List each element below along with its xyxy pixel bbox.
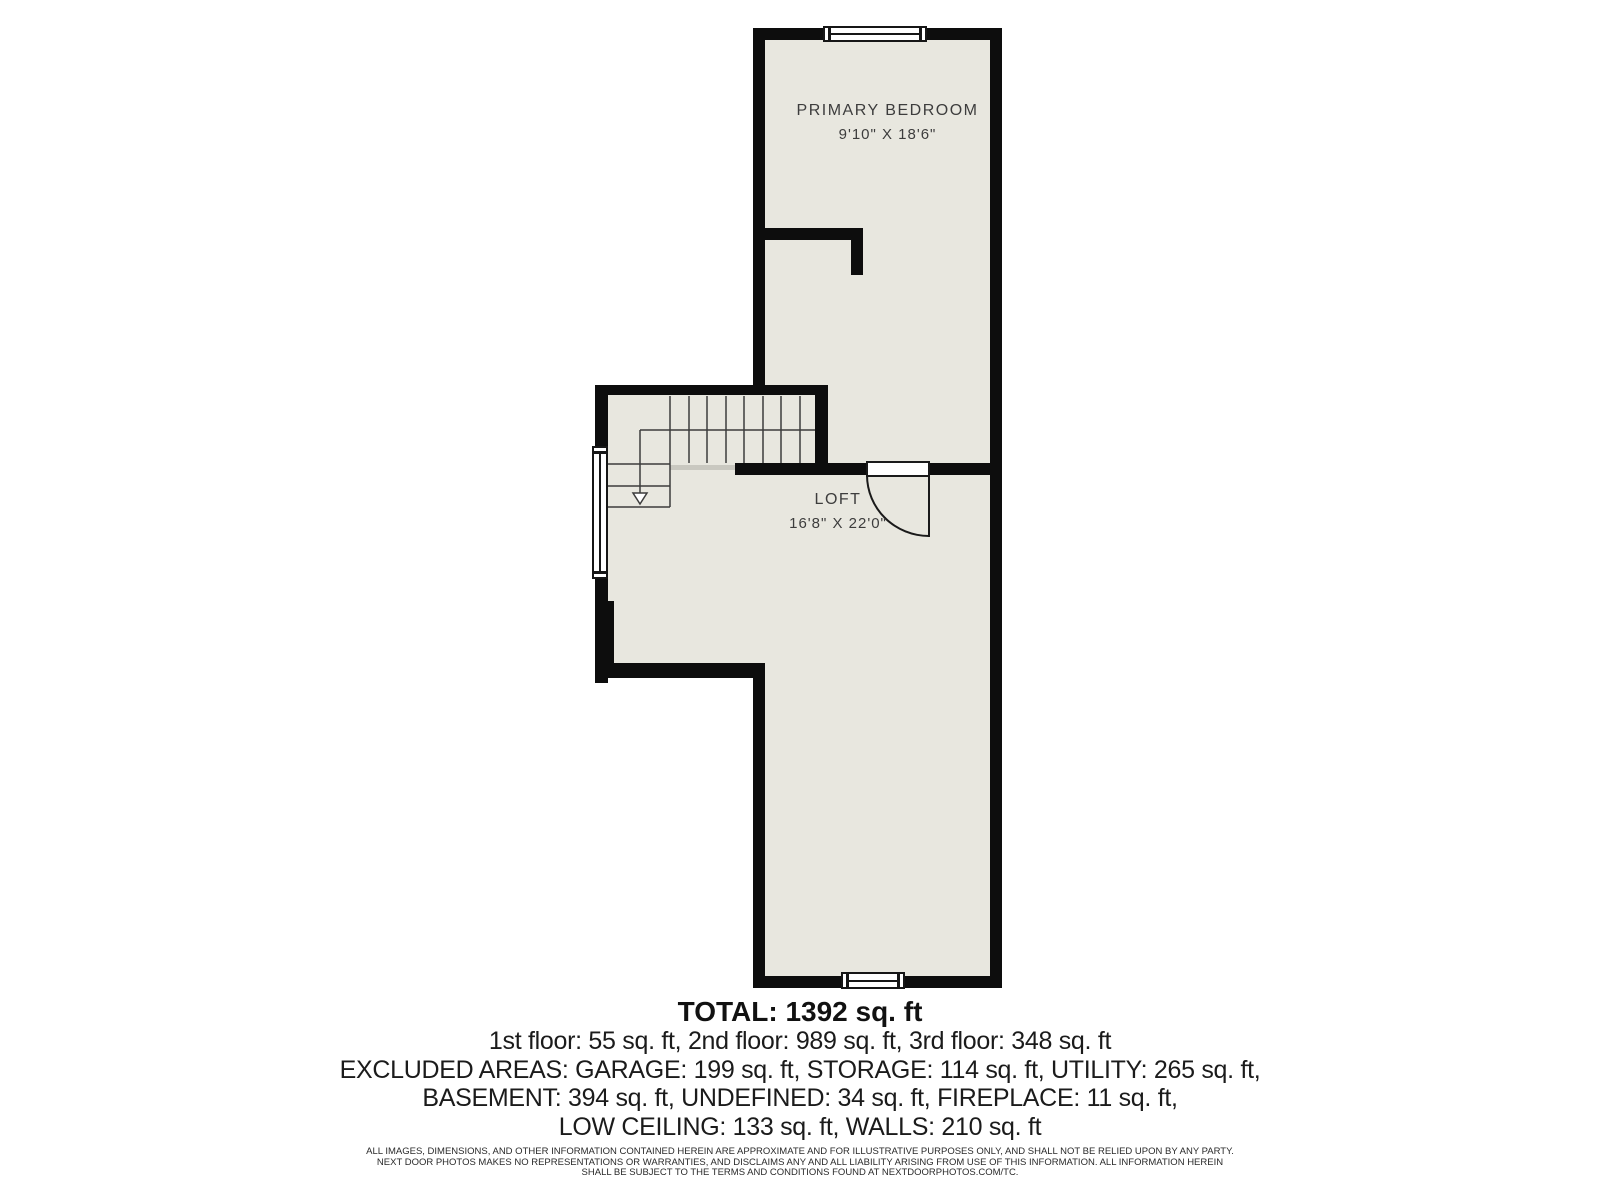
wall-bedroom-stub-v	[851, 240, 863, 275]
stair-opening-edge	[670, 465, 735, 470]
window-cap	[594, 571, 606, 574]
room-label-primary-bedroom: PRIMARY BEDROOM 9'10" X 18'6"	[775, 102, 1000, 143]
window-cap	[919, 28, 922, 40]
wall-bedroom-stub-h	[765, 228, 863, 240]
window-pane-line	[828, 33, 922, 35]
room-dimensions: 16'8" X 22'0"	[738, 516, 938, 532]
disclaimer-line-3: SHALL BE SUBJECT TO THE TERMS AND CONDIT…	[0, 1168, 1600, 1179]
wall-divider-right	[930, 463, 1002, 475]
wall-stair-right	[815, 395, 828, 463]
wall-loft-top	[595, 385, 828, 395]
summary-excluded-3: LOW CEILING: 133 sq. ft, WALLS: 210 sq. …	[0, 1113, 1600, 1142]
window-pane-line	[599, 451, 601, 574]
summary-excluded-1: EXCLUDED AREAS: GARAGE: 199 sq. ft, STOR…	[0, 1056, 1600, 1085]
room-name: PRIMARY BEDROOM	[775, 102, 1000, 120]
disclaimer-line-1: ALL IMAGES, DIMENSIONS, AND OTHER INFORM…	[0, 1147, 1600, 1158]
wall-divider-left	[735, 463, 866, 475]
room-name: LOFT	[738, 491, 938, 509]
wall-right	[990, 28, 1002, 988]
wall-loft-left-step	[608, 601, 614, 665]
disclaimer: ALL IMAGES, DIMENSIONS, AND OTHER INFORM…	[0, 1147, 1600, 1179]
room-label-loft: LOFT 16'8" X 22'0"	[738, 491, 938, 532]
window-top	[823, 26, 927, 42]
floorplan-page: { "document": { "type": "floor-plan" }, …	[0, 0, 1600, 1200]
summary-excluded-2: BASEMENT: 394 sq. ft, UNDEFINED: 34 sq. …	[0, 1084, 1600, 1113]
wall-notch-bottom	[595, 663, 765, 678]
wall-bedroom-left	[753, 28, 765, 395]
window-cap	[897, 974, 900, 987]
room-dimensions: 9'10" X 18'6"	[775, 127, 1000, 143]
window-cap	[828, 28, 831, 40]
summary-total: TOTAL: 1392 sq. ft	[0, 997, 1600, 1027]
window-cap	[594, 451, 606, 454]
summary-floors: 1st floor: 55 sq. ft, 2nd floor: 989 sq.…	[0, 1027, 1600, 1056]
window-left	[592, 446, 608, 579]
window-cap	[846, 974, 849, 987]
window-bottom	[841, 972, 905, 989]
window-pane-line	[846, 980, 900, 982]
loft-floor-lower	[765, 463, 990, 976]
area-summary: TOTAL: 1392 sq. ft 1st floor: 55 sq. ft,…	[0, 997, 1600, 1179]
wall-lower-left	[753, 663, 765, 988]
